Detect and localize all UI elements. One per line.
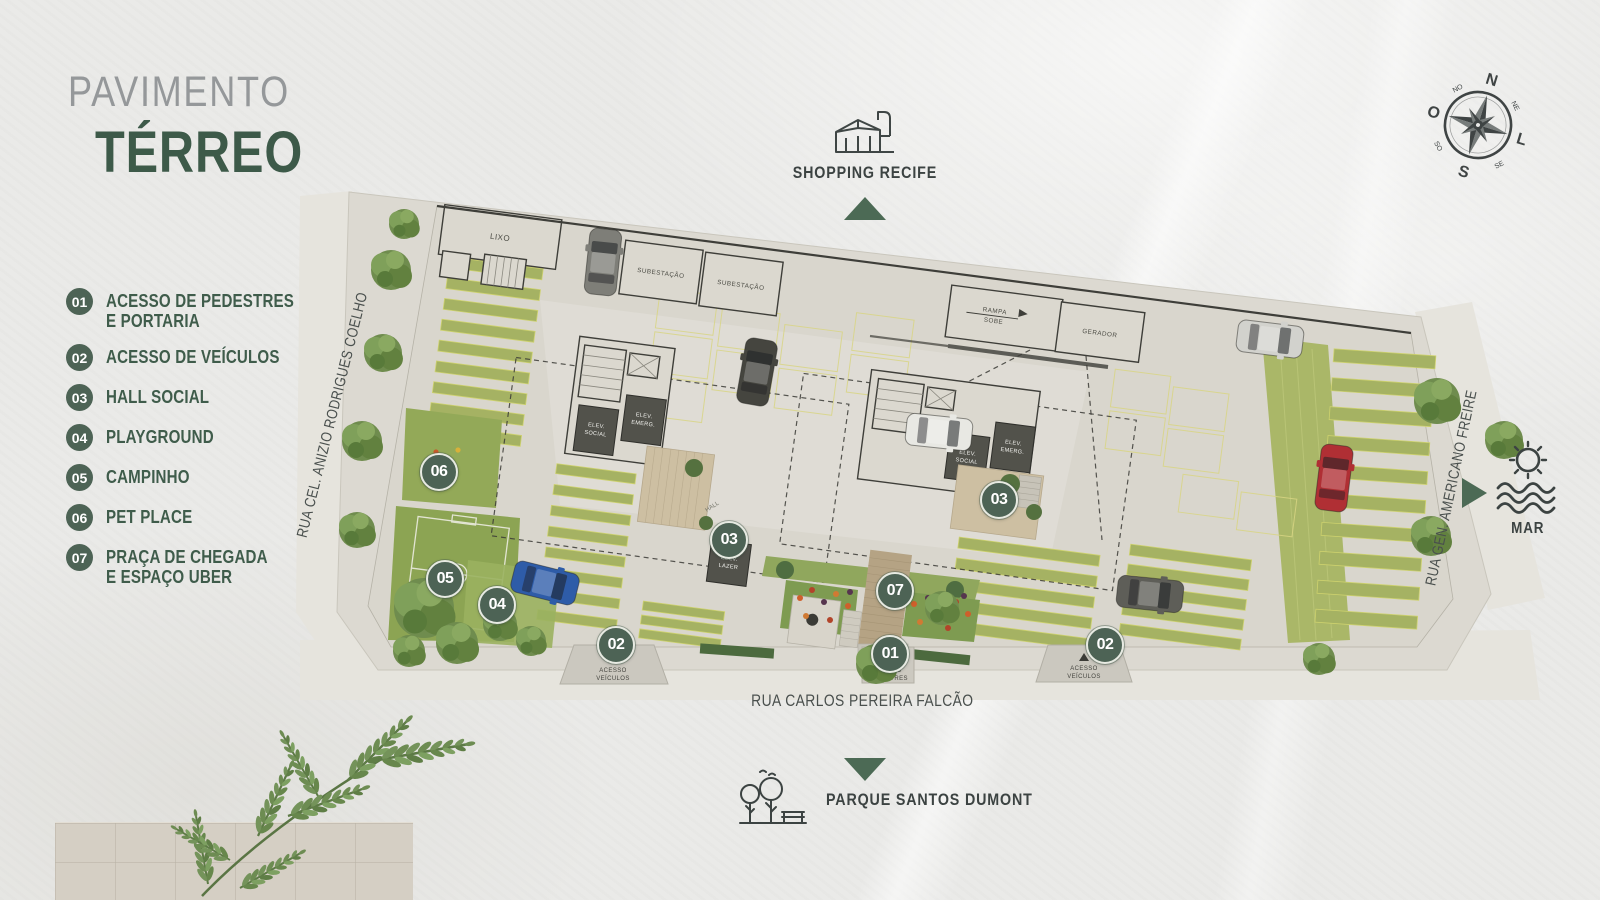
title-line1: PAVIMENTO — [68, 68, 290, 117]
svg-text:ACESSO: ACESSO — [599, 668, 626, 674]
room-subestacao-2: SUBESTAÇÃO — [699, 252, 783, 316]
legend-badge: 05 — [66, 464, 93, 491]
parque-label: PARQUE SANTOS DUMONT — [826, 790, 1072, 810]
compass-rose: N S O L NO NE SE SO — [1398, 50, 1563, 205]
legend-badge: 04 — [66, 424, 93, 451]
legend-badge: 06 — [66, 504, 93, 531]
svg-text:VEÍCULOS: VEÍCULOS — [596, 675, 630, 682]
legend-item-01: 01 ACESSO DE PEDESTRESE PORTARIA — [66, 288, 330, 331]
plan-badge-07: 07 — [876, 572, 914, 610]
room-gerador: GERADOR — [1055, 302, 1145, 362]
room-subestacao-1: SUBESTAÇÃO — [619, 240, 703, 304]
plan-badge-04: 04 — [478, 586, 516, 624]
shopping-recife-label: SHOPPING RECIFE — [765, 163, 965, 183]
legend-item-03: 03 HALL SOCIAL — [66, 384, 330, 411]
shopping-mall-icon — [828, 106, 902, 158]
legend-badge: 07 — [66, 544, 93, 571]
svg-text:VEÍCULOS: VEÍCULOS — [1067, 673, 1101, 680]
svg-text:ACESSO: ACESSO — [1070, 666, 1097, 672]
page-title: PAVIMENTO TÉRREO — [68, 68, 343, 186]
legend-badge: 01 — [66, 288, 93, 315]
plan-badge-02-right: 02 — [1086, 626, 1124, 664]
plan-badge-05: 05 — [426, 560, 464, 598]
sun-waves-icon — [1492, 438, 1564, 518]
svg-text:NO: NO — [1452, 83, 1465, 94]
title-line2: TÉRREO — [95, 119, 303, 186]
svg-text:S: S — [1456, 163, 1471, 182]
plan-badge-06: 06 — [420, 453, 458, 491]
direction-right-triangle — [1462, 478, 1487, 508]
legend-item-02: 02 ACESSO DE VEÍCULOS — [66, 344, 330, 371]
plan-badge-03-left: 03 — [710, 521, 748, 559]
legend-item-05: 05 CAMPINHO — [66, 464, 330, 491]
plan-badge-01: 01 — [871, 635, 909, 673]
svg-text:L: L — [1514, 130, 1529, 149]
svg-text:N: N — [1484, 71, 1500, 91]
svg-text:SO: SO — [1432, 140, 1443, 153]
svg-text:O: O — [1425, 103, 1442, 123]
legend-item-04: 04 PLAYGROUND — [66, 424, 330, 451]
mar-label: MAR — [1495, 520, 1561, 538]
street-label-bottom: RUA CARLOS PEREIRA FALCÃO — [662, 692, 1062, 711]
plan-badge-02-left: 02 — [597, 626, 635, 664]
legend-badge: 03 — [66, 384, 93, 411]
svg-text:NE: NE — [1509, 100, 1520, 112]
fern-branch — [90, 688, 530, 900]
park-icon — [736, 766, 810, 830]
tower1-core: ELEV. SOCIAL ELEV. EMERG. — [565, 336, 675, 465]
direction-down-triangle — [844, 758, 886, 781]
legend-badge: 02 — [66, 344, 93, 371]
direction-up-triangle — [844, 197, 886, 220]
svg-text:SE: SE — [1494, 160, 1506, 171]
plan-badge-03-right: 03 — [980, 481, 1018, 519]
floorplan-poster: LIXO SUBESTAÇÃO SUBESTAÇÃO RAMPA SOBE GE… — [0, 0, 1600, 900]
legend-item-06: 06 PET PLACE — [66, 504, 330, 531]
